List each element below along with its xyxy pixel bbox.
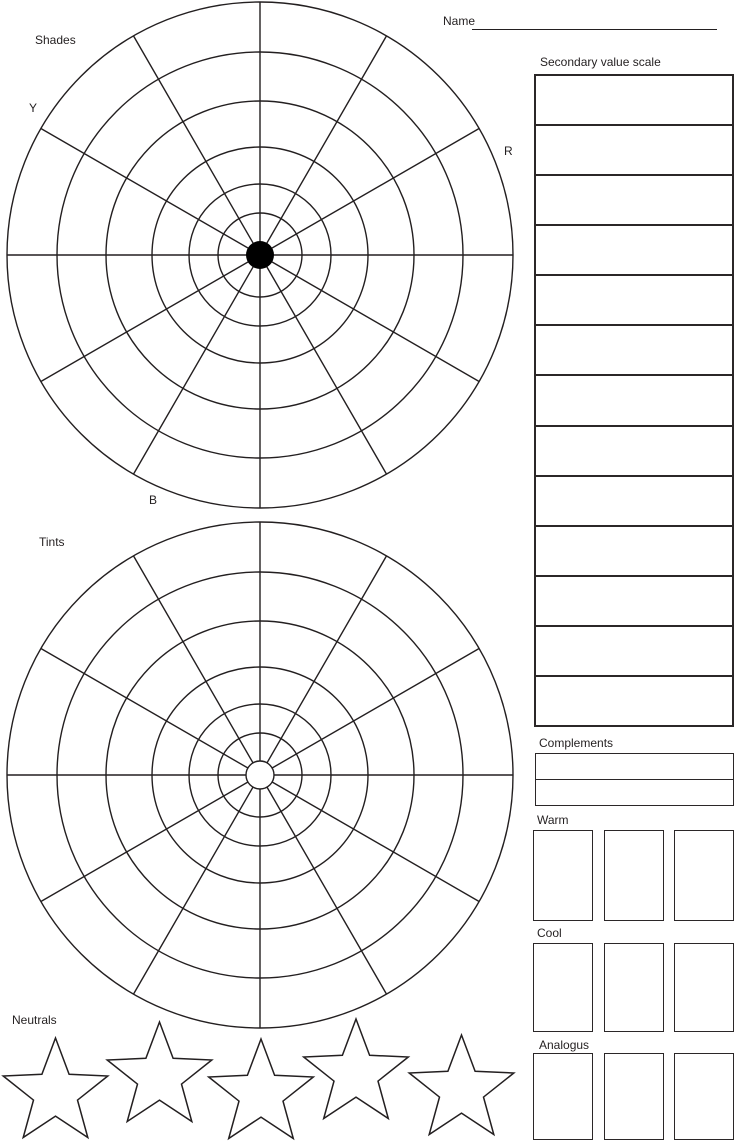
analogous-swatch-box[interactable] [533,1053,593,1140]
analogous-swatch-row [533,1053,734,1140]
value-scale-cell[interactable] [536,324,732,374]
value-scale-cell[interactable] [536,525,732,575]
hue-label-blue: B [149,494,157,507]
value-scale-cell[interactable] [536,625,732,675]
neutral-star[interactable] [209,1039,314,1139]
value-scale-cell[interactable] [536,124,732,174]
value-scale-cell[interactable] [536,575,732,625]
shades-color-wheel[interactable] [0,0,520,512]
wheel-center-circle [246,761,274,789]
neutrals-stars [0,1010,530,1144]
color-theory-worksheet: Name Shades Y R B Tints Secondary value … [0,0,736,1144]
value-scale-cell[interactable] [536,274,732,324]
cool-swatch-box[interactable] [674,943,734,1032]
warm-swatch-box[interactable] [674,830,734,921]
neutral-star[interactable] [304,1019,409,1119]
complements-row[interactable] [536,779,733,805]
hue-label-red: R [504,145,513,158]
warm-swatch-box[interactable] [533,830,593,921]
cool-label: Cool [537,927,562,940]
cool-swatch-box[interactable] [604,943,664,1032]
neutral-star[interactable] [3,1038,108,1138]
neutral-star[interactable] [409,1035,514,1135]
value-scale-cell[interactable] [536,675,732,725]
value-scale-cell[interactable] [536,374,732,424]
analogous-swatch-box[interactable] [604,1053,664,1140]
cool-swatch-box[interactable] [533,943,593,1032]
neutral-star[interactable] [107,1022,212,1122]
complements-box [535,753,734,806]
analogous-label: Analogus [539,1039,589,1052]
hue-label-yellow: Y [29,102,37,115]
value-scale-cell[interactable] [536,425,732,475]
analogous-swatch-box[interactable] [674,1053,734,1140]
value-scale-cell[interactable] [536,475,732,525]
complements-label: Complements [539,737,613,750]
warm-swatch-row [533,830,734,921]
warm-label: Warm [537,814,569,827]
secondary-value-scale-label: Secondary value scale [540,56,661,69]
complements-row[interactable] [536,754,733,779]
secondary-value-scale [534,74,734,727]
tints-color-wheel[interactable] [0,518,520,1038]
value-scale-cell[interactable] [536,76,732,124]
warm-swatch-box[interactable] [604,830,664,921]
value-scale-cell[interactable] [536,174,732,224]
wheel-center-dot [246,241,274,269]
cool-swatch-row [533,943,734,1032]
value-scale-cell[interactable] [536,224,732,274]
